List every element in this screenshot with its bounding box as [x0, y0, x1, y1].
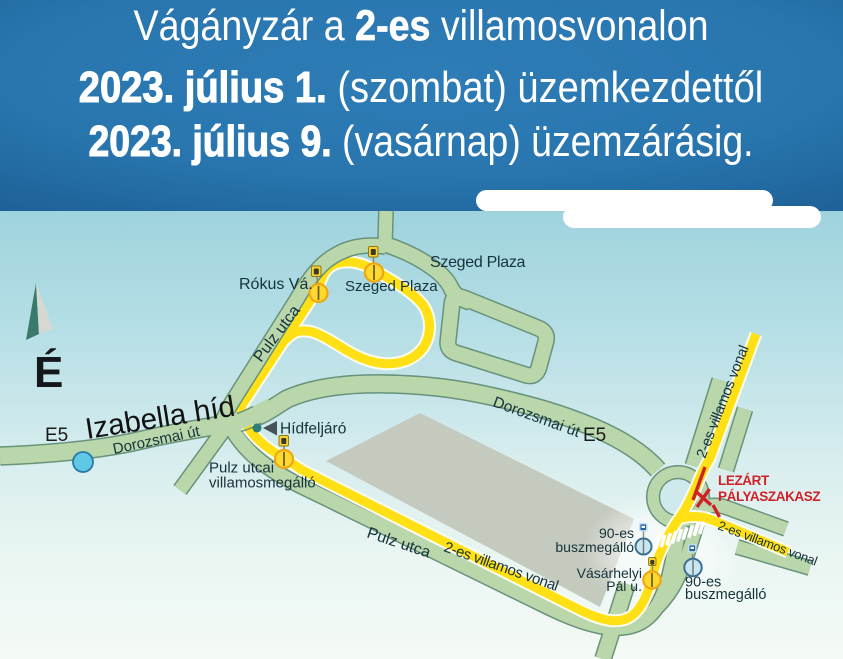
svg-text:Szeged Plaza: Szeged Plaza — [345, 278, 438, 295]
svg-text:LEZÁRT: LEZÁRT — [718, 473, 770, 488]
svg-text:PÁLYASZAKASZ: PÁLYASZAKASZ — [718, 489, 820, 504]
svg-text:Szeged Plaza: Szeged Plaza — [430, 254, 526, 271]
svg-text:Rókus Vá.: Rókus Vá. — [239, 276, 313, 293]
svg-text:E5: E5 — [45, 425, 68, 446]
svg-text:buszmegálló: buszmegálló — [685, 587, 766, 603]
svg-text:Hídfeljáró: Hídfeljáró — [280, 421, 346, 438]
svg-text:E5: E5 — [583, 425, 606, 446]
svg-text:É: É — [34, 347, 63, 397]
svg-text:2023. július 9. (vasárnap) üze: 2023. július 9. (vasárnap) üzemzárásig. — [88, 116, 753, 166]
svg-text:Pál u.: Pál u. — [606, 578, 642, 594]
svg-text:Vágányzár a 2-es villamosvonal: Vágányzár a 2-es villamosvonalon — [133, 1, 708, 50]
svg-text:2023. július 1. (szombat) üzem: 2023. július 1. (szombat) üzemkezdettől — [79, 62, 763, 111]
svg-text:villamosmegálló: villamosmegálló — [209, 475, 316, 492]
svg-text:buszmegálló: buszmegálló — [555, 539, 634, 555]
